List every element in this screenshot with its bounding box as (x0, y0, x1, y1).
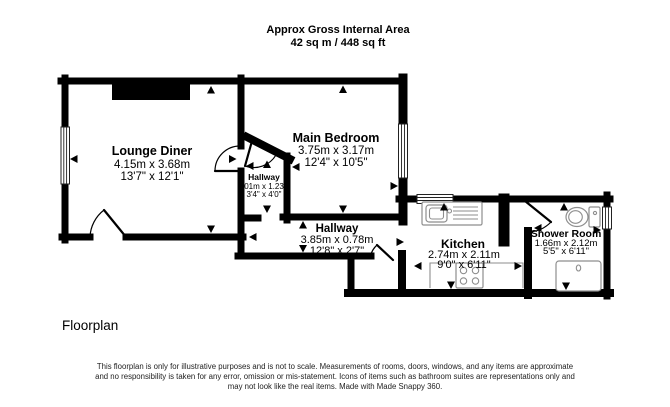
disclaimer-line1: This floorplan is only for illustrative … (97, 362, 573, 371)
measure-arrow-icon (299, 245, 307, 253)
floorplan-caption: Floorplan (62, 318, 118, 333)
measure-arrow-icon (70, 155, 78, 163)
measure-arrow-icon (560, 203, 568, 211)
measure-arrow-icon (339, 86, 347, 94)
plan-title-line1: Approx Gross Internal Area (266, 24, 410, 36)
shower-tray-icon (556, 261, 601, 291)
hallway-small-imperial: 3'4" x 4'0" (247, 190, 282, 199)
measure-arrow-icon (263, 206, 271, 214)
hallway-small-label: Hallway (248, 172, 280, 182)
kitchen-imperial: 9'0" x 6'11" (437, 259, 490, 271)
measure-arrow-icon (292, 163, 300, 171)
window-icon (399, 124, 408, 178)
measure-arrow-icon (299, 221, 307, 229)
measure-arrow-icon (414, 262, 422, 270)
chimney-breast (112, 78, 190, 100)
measure-arrow-icon (447, 282, 455, 290)
shower-room-imperial: 5'5" x 6'11" (543, 246, 589, 257)
door-arc-icon (215, 146, 241, 171)
measure-arrow-icon (246, 162, 254, 170)
window-icon (61, 127, 70, 184)
plan-title-line2: 42 sq m / 448 sq ft (291, 37, 386, 49)
measure-arrow-icon (207, 86, 215, 94)
hallway-imperial: 12'8" x 2'7" (310, 245, 364, 257)
measure-arrow-icon (339, 206, 347, 214)
walls (61, 78, 610, 296)
toilet-icon (566, 207, 600, 227)
lounge-diner-label: Lounge Diner (112, 144, 193, 158)
main-bedroom-metric: 3.75m x 3.17m (298, 145, 374, 157)
window-icon (603, 207, 612, 229)
measure-arrow-icon (391, 182, 399, 190)
disclaimer-line2: and no responsibility is taken for any e… (95, 372, 575, 381)
kitchen-sink-icon (422, 202, 482, 225)
lounge-diner-metric: 4.15m x 3.68m (114, 159, 190, 171)
floorplan-svg: Approx Gross Internal Area 42 sq m / 448… (0, 0, 670, 407)
disclaimer-line3: may not look like the real items. Made w… (228, 382, 443, 391)
measure-arrow-icon (397, 238, 405, 246)
main-bedroom-label: Main Bedroom (293, 131, 380, 145)
lounge-diner-imperial: 13'7" x 12'1" (120, 171, 183, 183)
main-bedroom-imperial: 12'4" x 10'5" (304, 157, 367, 169)
measure-arrow-icon (249, 233, 257, 241)
measure-arrow-icon (207, 226, 215, 234)
door-arc-icon (90, 210, 126, 237)
floorplan-page: Approx Gross Internal Area 42 sq m / 448… (0, 0, 670, 407)
measure-arrow-icon (229, 155, 237, 163)
